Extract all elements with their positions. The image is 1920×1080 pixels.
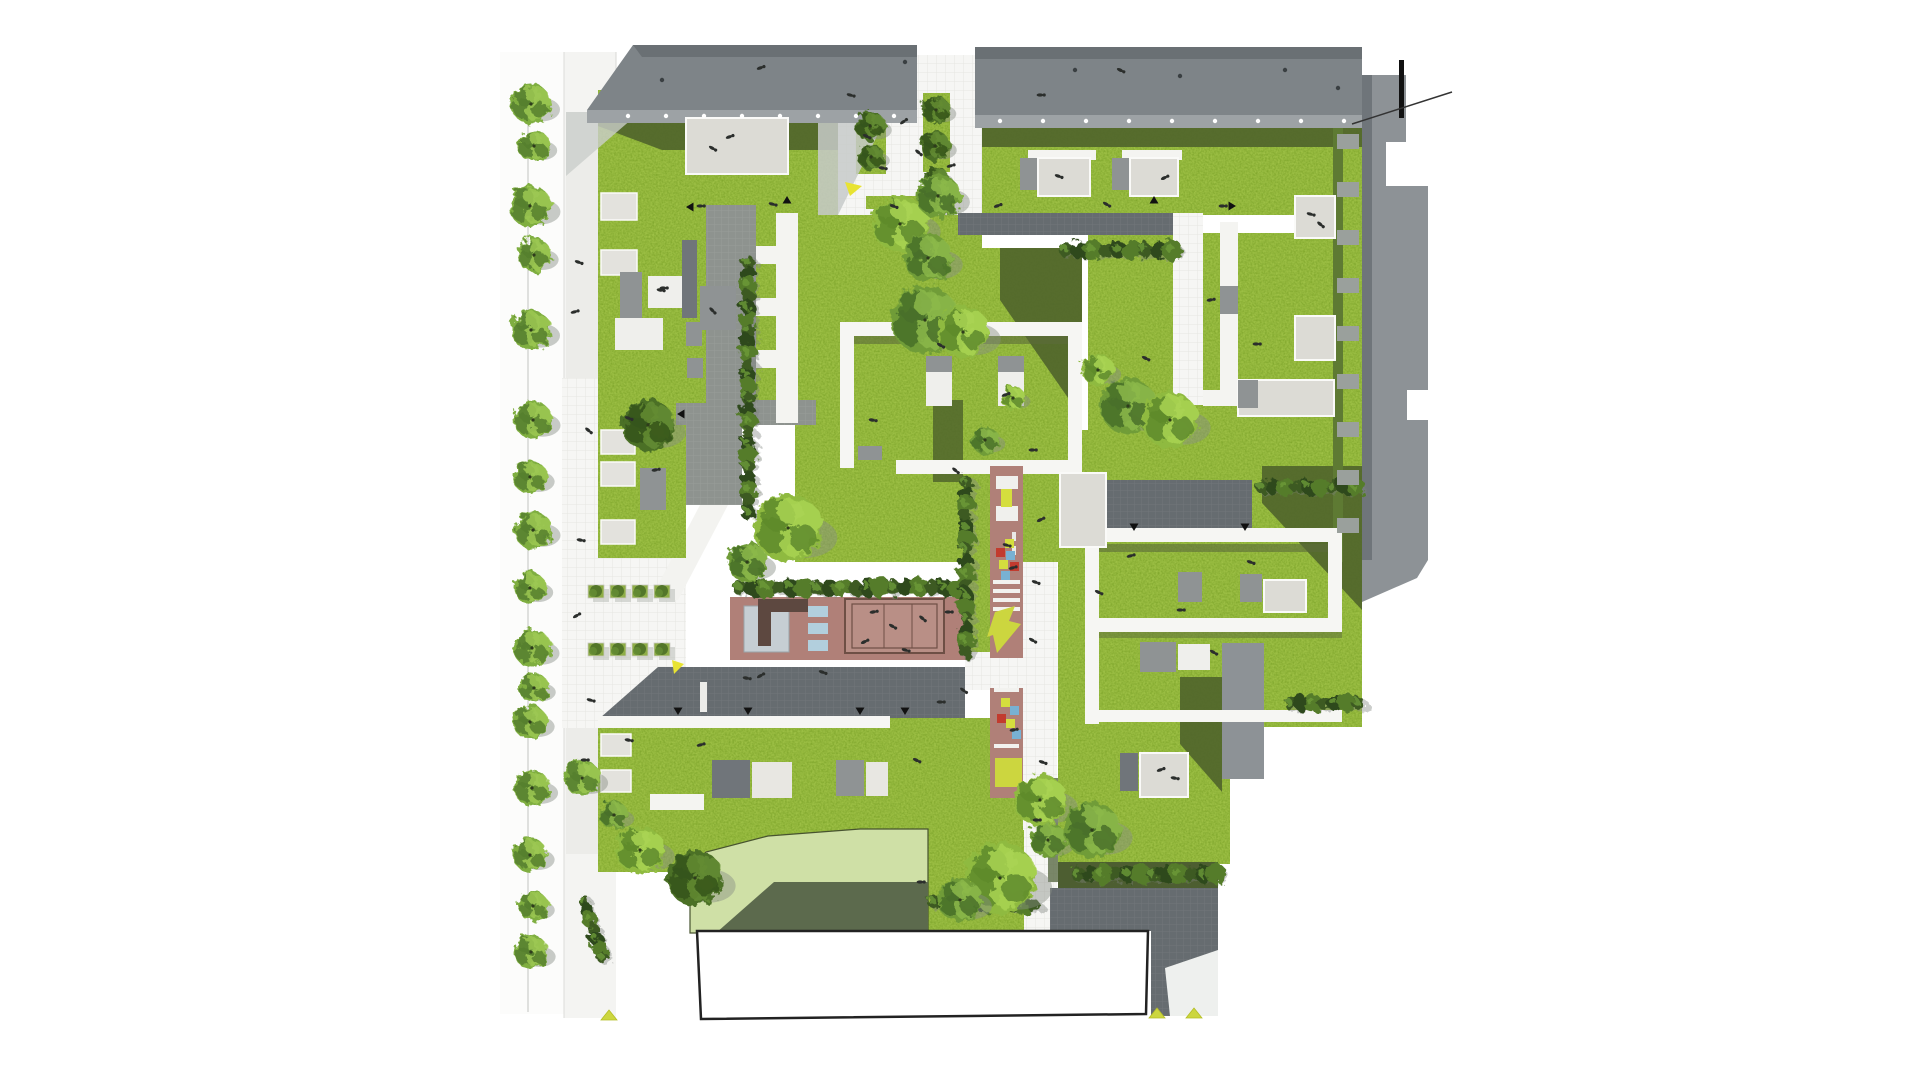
tree-trunk <box>936 194 939 197</box>
person-body <box>581 758 588 761</box>
stair-core <box>1020 158 1038 190</box>
facade-downlight <box>1299 119 1303 123</box>
person-body <box>1033 818 1040 821</box>
person <box>945 610 954 613</box>
tree-foliage <box>641 848 660 867</box>
roof-vent <box>660 78 664 82</box>
tree-foliage <box>524 462 537 475</box>
tree-trunk <box>528 720 531 723</box>
shrub-highlight <box>742 461 749 468</box>
tree-foliage <box>534 905 546 917</box>
play-bench <box>994 688 1019 692</box>
shrub-highlight <box>928 897 935 904</box>
tree-trunk <box>1096 368 1099 371</box>
roof-vent <box>1336 86 1340 90</box>
shrub-highlight <box>1280 482 1287 489</box>
play-tile <box>999 560 1008 569</box>
tree-foliage <box>528 893 539 904</box>
tree-foliage <box>1093 827 1115 849</box>
tree-trunk <box>1046 838 1049 841</box>
shrub-highlight <box>742 484 749 491</box>
tree-foliage <box>939 194 957 212</box>
walkway-slab-shadow <box>1085 544 1342 552</box>
balcony <box>1337 470 1359 485</box>
building-slab <box>840 336 854 468</box>
stair-core <box>998 356 1024 372</box>
shrub-highlight <box>960 567 967 574</box>
tree-foliage <box>632 829 650 847</box>
roof-pad <box>1178 644 1210 670</box>
shrub-highlight <box>742 280 749 287</box>
tree-foliage <box>649 422 670 443</box>
play-tile <box>1010 706 1019 715</box>
tree-trunk <box>532 144 535 147</box>
planter-shrub <box>633 647 641 655</box>
person-head <box>666 286 669 289</box>
shrub-highlight <box>1113 244 1121 252</box>
stair-core <box>1112 158 1130 190</box>
site-plan-figure <box>0 0 1920 1080</box>
person <box>1253 342 1262 345</box>
slab-tooth <box>858 446 882 460</box>
facade-downlight <box>854 114 858 118</box>
tree-foliage <box>891 199 912 220</box>
facade-downlight <box>626 114 630 118</box>
tree-foliage <box>576 762 590 776</box>
stair-core <box>1120 753 1138 791</box>
tree-foliage <box>964 329 985 350</box>
roof-pad <box>752 762 792 798</box>
shrub-highlight <box>960 635 967 642</box>
shrub-highlight <box>734 582 742 590</box>
building-slab <box>1068 336 1082 468</box>
building-slab <box>598 716 890 728</box>
roof-vent <box>903 60 907 64</box>
future-phase-outline <box>697 931 1148 1019</box>
facade-downlight <box>740 114 744 118</box>
person <box>660 286 669 289</box>
facade-downlight <box>1170 119 1174 123</box>
entry-yard <box>1130 158 1178 196</box>
facade-downlight <box>1213 119 1217 123</box>
play-stripe <box>993 580 1020 584</box>
shrub-highlight <box>742 325 749 332</box>
tree-foliage <box>524 840 537 853</box>
tree-trunk <box>529 950 532 953</box>
facade-downlight <box>1041 119 1045 123</box>
tree-foliage <box>526 631 540 645</box>
context-roof-edge <box>633 45 917 57</box>
shrub-highlight <box>742 302 749 309</box>
play-mat <box>808 606 828 617</box>
tree-foliage <box>639 402 659 422</box>
roof-pad <box>615 318 663 350</box>
shrub-highlight <box>742 257 749 264</box>
play-tile <box>1001 571 1010 580</box>
tree-foliage <box>953 881 970 898</box>
tree-foliage <box>528 240 541 253</box>
shrub-highlight <box>1307 698 1314 705</box>
tree-foliage <box>527 403 541 417</box>
shrub-highlight <box>1197 868 1205 876</box>
tree-foliage <box>526 772 540 786</box>
play-equipment <box>996 476 1018 489</box>
person-head <box>943 700 946 703</box>
shrub-highlight <box>862 582 870 590</box>
shrub-highlight <box>960 499 967 506</box>
tree-trunk <box>983 438 986 441</box>
balcony <box>1337 374 1359 389</box>
shrub-highlight <box>1330 698 1337 705</box>
person-head <box>923 880 926 883</box>
person <box>1029 448 1038 451</box>
tree-foliage <box>525 574 537 586</box>
tree-foliage <box>790 525 817 552</box>
tree-foliage <box>529 675 540 686</box>
play-tile <box>997 714 1006 723</box>
person-head <box>951 610 954 613</box>
tree-foliage <box>1002 874 1031 903</box>
tree-foliage <box>1041 797 1062 818</box>
tree-foliage <box>535 253 549 267</box>
person-body <box>1029 448 1036 451</box>
person <box>917 880 926 883</box>
roof-pad <box>926 372 952 406</box>
tree-foliage <box>1093 356 1105 368</box>
tree-foliage <box>872 156 882 166</box>
roof-vent <box>1283 68 1287 72</box>
stair-core <box>1238 380 1258 408</box>
balcony <box>1337 326 1359 341</box>
play-stripe <box>993 589 1020 593</box>
shrub-highlight <box>1122 868 1130 876</box>
tree-foliage <box>867 146 877 156</box>
stair-core <box>620 272 642 318</box>
shrub-highlight <box>913 582 921 590</box>
shrub-highlight <box>1060 244 1068 252</box>
tree-trunk <box>923 318 926 321</box>
walkway-bench <box>700 682 707 712</box>
shrub-highlight <box>759 582 767 590</box>
tree-foliage <box>1009 387 1018 396</box>
tree-trunk <box>958 898 961 901</box>
tree-foliage <box>936 145 948 157</box>
facade-downlight <box>816 114 820 118</box>
tree-foliage <box>920 237 938 255</box>
person-head <box>1039 818 1042 821</box>
tree-trunk <box>934 108 937 111</box>
entry-yard <box>601 520 635 544</box>
tree-foliage <box>535 144 548 157</box>
tree-foliage <box>696 875 718 897</box>
tree-foliage <box>871 125 883 137</box>
tree-foliage <box>1099 368 1112 381</box>
person-body <box>697 204 704 207</box>
tree-trunk <box>529 102 532 105</box>
tree-foliage <box>1049 838 1063 852</box>
walkway-east <box>1088 480 1252 528</box>
shrub-highlight <box>1352 698 1359 705</box>
planter-shrub <box>655 589 663 597</box>
tree-foliage <box>865 113 876 124</box>
entry-yard <box>601 250 637 275</box>
person-body <box>1177 608 1184 611</box>
tree-foliage <box>1042 824 1056 838</box>
site-plan-canvas <box>0 0 1920 1080</box>
tree-trunk <box>961 330 964 333</box>
shrub-highlight <box>1139 244 1147 252</box>
tree-foliage <box>524 86 539 101</box>
entry-yard <box>601 734 631 756</box>
tree-trunk <box>1090 828 1093 831</box>
tree-trunk <box>530 786 533 789</box>
facade-downlight <box>1256 119 1260 123</box>
entry-yard <box>601 193 637 220</box>
facade-downlight <box>998 119 1002 123</box>
walkway-northeast <box>958 213 1180 235</box>
shrub-highlight <box>578 895 584 901</box>
tree-trunk <box>693 876 696 879</box>
entry-yard <box>1140 753 1188 797</box>
balcony <box>1337 134 1359 149</box>
building-slab <box>650 794 704 810</box>
facade-downlight <box>892 114 896 118</box>
shrub-highlight <box>1097 868 1105 876</box>
play-tile <box>1006 719 1015 728</box>
walkway-main <box>600 667 965 718</box>
tree-foliage <box>986 439 997 450</box>
stair-core <box>1240 574 1262 602</box>
person-head <box>703 204 706 207</box>
stair-core <box>836 760 864 796</box>
shrub-highlight <box>785 582 793 590</box>
balcony <box>1337 182 1359 197</box>
entry-yard <box>1038 158 1090 196</box>
facade-downlight <box>1342 119 1346 123</box>
stair-core <box>712 760 750 798</box>
person-head <box>1259 342 1262 345</box>
stair-core <box>1140 642 1176 672</box>
balcony <box>1337 278 1359 293</box>
stair-core <box>1178 572 1202 602</box>
tree-foliage <box>980 428 991 439</box>
shrub-highlight <box>939 582 947 590</box>
tree-trunk <box>638 848 641 851</box>
entry-yard <box>686 118 788 174</box>
building-slab <box>776 213 798 423</box>
shrub-highlight <box>1147 868 1155 876</box>
person-body <box>937 700 944 703</box>
shrub-highlight <box>742 393 749 400</box>
person-head <box>1035 448 1038 451</box>
person <box>1037 93 1046 96</box>
tree-foliage <box>931 98 942 109</box>
tree-foliage <box>529 132 541 144</box>
shrub-highlight <box>960 522 967 529</box>
stair-core <box>687 358 703 378</box>
building-slab <box>1085 528 1342 542</box>
tree-foliage <box>532 328 548 344</box>
shrub-highlight <box>836 582 844 590</box>
balcony <box>1337 230 1359 245</box>
tree-trunk <box>531 418 534 421</box>
shrub-highlight <box>1086 244 1094 252</box>
tree-trunk <box>926 256 929 259</box>
hedge-spine-west <box>957 476 978 660</box>
person-body <box>945 610 952 613</box>
play-equipment <box>996 506 1018 521</box>
shrub-highlight <box>960 477 967 484</box>
tree-foliage <box>533 646 548 661</box>
stair-core <box>686 322 702 346</box>
play-tile <box>1006 551 1015 560</box>
person <box>1177 608 1186 611</box>
tree-trunk <box>580 776 583 779</box>
play-equipment-yellow <box>1001 489 1012 507</box>
tree-foliage <box>524 312 539 327</box>
walkway-slab-shadow <box>1085 632 1342 638</box>
shrub-highlight <box>1256 482 1263 489</box>
shrub-highlight <box>742 439 749 446</box>
entry-yard <box>601 462 635 486</box>
person-head <box>1225 204 1228 207</box>
tree-trunk <box>528 475 531 478</box>
tree-foliage <box>523 188 539 204</box>
planter-shrub <box>633 589 641 597</box>
tree-trunk <box>998 876 1001 879</box>
facade-downlight <box>778 114 782 118</box>
facade-downlight <box>1127 119 1131 123</box>
tree-foliage <box>954 309 974 329</box>
shrub-highlight <box>960 545 967 552</box>
tree-trunk <box>528 586 531 589</box>
tree-trunk <box>745 560 748 563</box>
tree-trunk <box>531 528 534 531</box>
tree-trunk <box>898 222 901 225</box>
tree-foliage <box>531 475 545 489</box>
tree-foliage <box>531 586 544 599</box>
tree-trunk <box>528 853 531 856</box>
tree-foliage <box>1031 777 1051 797</box>
tree-foliage <box>1014 397 1024 407</box>
tree-foliage <box>532 950 546 964</box>
context-facade2 <box>975 115 1362 128</box>
tree-trunk <box>1038 798 1041 801</box>
shrub-highlight <box>591 934 597 940</box>
person-head <box>1183 608 1186 611</box>
shrub-highlight <box>742 370 749 377</box>
balcony <box>1337 422 1359 437</box>
tree-foliage <box>534 418 549 433</box>
yellow-square <box>995 758 1022 787</box>
person <box>1219 204 1228 207</box>
tree-foliage <box>931 177 948 194</box>
context-roof-edge2 <box>975 47 1362 59</box>
shrub-highlight <box>1072 868 1080 876</box>
planter-shrub <box>655 647 663 655</box>
roof-vent <box>1073 68 1077 72</box>
planter-shrub <box>589 647 597 655</box>
person-body <box>1253 342 1260 345</box>
person <box>1033 818 1042 821</box>
play-bench <box>994 744 1019 748</box>
tree-trunk <box>529 328 532 331</box>
hedge-northeast <box>1059 240 1186 261</box>
shrub-highlight <box>811 582 819 590</box>
tree-foliage <box>748 560 764 576</box>
tree-foliage <box>531 720 545 734</box>
person-head <box>1043 93 1046 96</box>
hedge-nw-vertical <box>739 256 760 520</box>
person <box>581 758 590 761</box>
person <box>697 204 706 207</box>
tree-foliage <box>961 898 979 916</box>
path-green-strip <box>1038 198 1066 211</box>
tree-foliage <box>914 290 940 316</box>
shrub-highlight <box>960 590 967 597</box>
play-stripe <box>993 598 1020 602</box>
tree-trunk <box>1011 396 1014 399</box>
facade-downlight <box>664 114 668 118</box>
slab-tooth <box>756 246 778 264</box>
person-body <box>917 880 924 883</box>
tree-foliage <box>1161 395 1182 416</box>
tree-trunk <box>530 646 533 649</box>
tree-foliage <box>524 707 537 720</box>
stair-core <box>1220 286 1238 314</box>
shrub-highlight <box>1327 482 1334 489</box>
tree-foliage <box>532 102 548 118</box>
shrub-highlight <box>742 348 749 355</box>
tree-foliage <box>740 544 755 559</box>
shrub <box>960 646 973 659</box>
sport-court <box>845 599 944 653</box>
shrub-highlight <box>742 507 749 514</box>
tree-foliage <box>527 513 541 527</box>
roof-pad <box>866 762 888 796</box>
tree-trunk <box>1168 418 1171 421</box>
stair-core <box>700 286 736 330</box>
shrub-highlight <box>598 953 604 959</box>
facade-downlight <box>702 114 706 118</box>
facade-downlight <box>1084 119 1088 123</box>
stair-core <box>682 240 697 318</box>
entry-yard <box>1295 316 1335 360</box>
shrub-highlight <box>888 582 896 590</box>
shrub-highlight <box>960 613 967 620</box>
balcony <box>1337 518 1359 533</box>
tree-trunk <box>612 813 615 816</box>
tree-trunk <box>528 204 531 207</box>
person-body <box>1037 93 1044 96</box>
tree-trunk <box>868 124 871 127</box>
tree-foliage <box>937 109 948 120</box>
entry-yard <box>1295 196 1335 238</box>
tree-foliage <box>535 687 547 699</box>
person-body <box>660 286 667 289</box>
tree-foliage <box>534 528 549 543</box>
planter-shrub <box>589 589 597 597</box>
tree-foliage <box>1119 381 1140 402</box>
tree-foliage <box>583 776 597 790</box>
shrub <box>1206 864 1227 885</box>
tree-foliage <box>930 133 941 144</box>
tree-trunk <box>532 686 535 689</box>
tree-foliage <box>531 853 545 867</box>
tree-foliage <box>615 814 626 825</box>
entry-yard <box>1060 473 1106 547</box>
tree-trunk <box>869 155 872 158</box>
